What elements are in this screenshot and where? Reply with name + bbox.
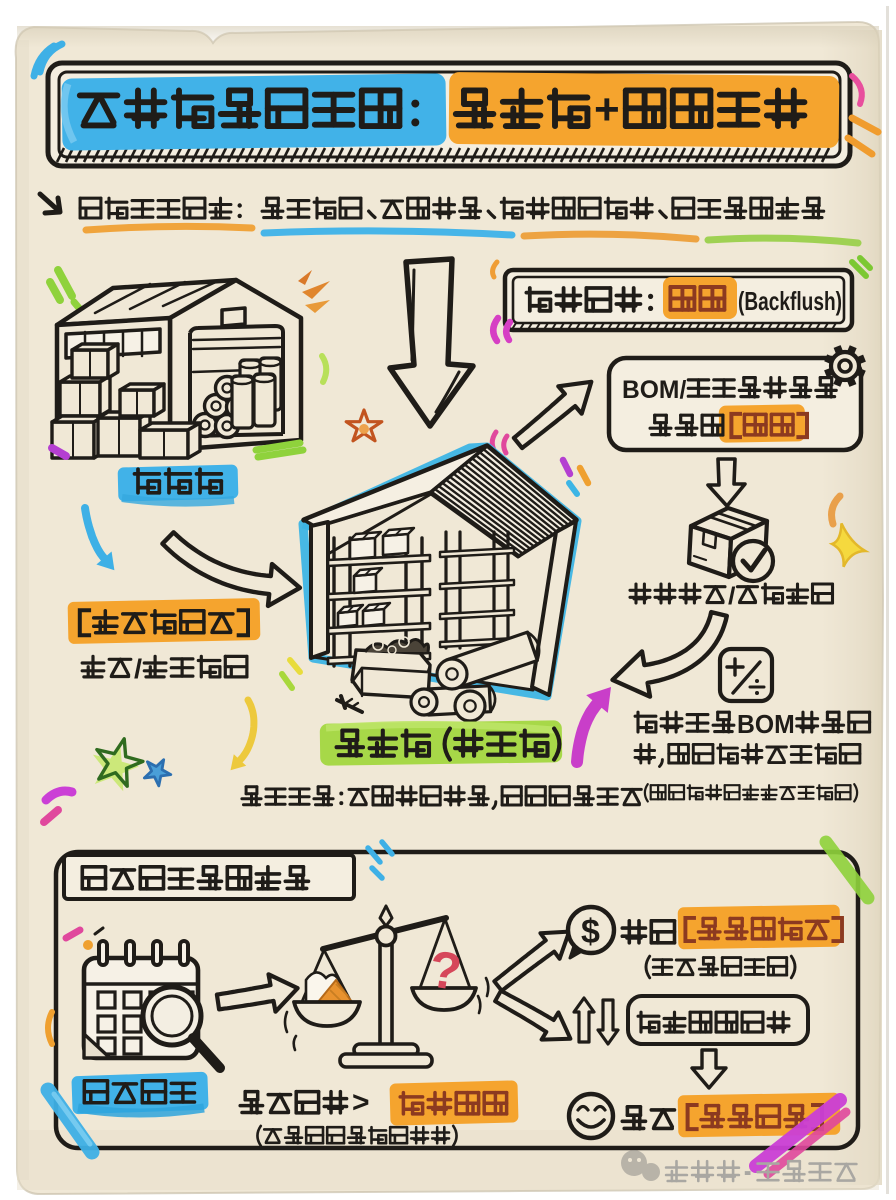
svg-text:/: / [728,583,736,610]
svg-text:(Backflush): (Backflush) [738,286,842,316]
svg-text:/: / [134,654,143,684]
svg-text:+: + [594,85,620,134]
svg-text:·: · [742,1160,756,1188]
svg-text:BOM: BOM [737,711,795,739]
svg-text:$: $ [581,913,600,951]
svg-text:BOM/: BOM/ [622,376,686,404]
svg-text:>: > [352,1086,370,1119]
